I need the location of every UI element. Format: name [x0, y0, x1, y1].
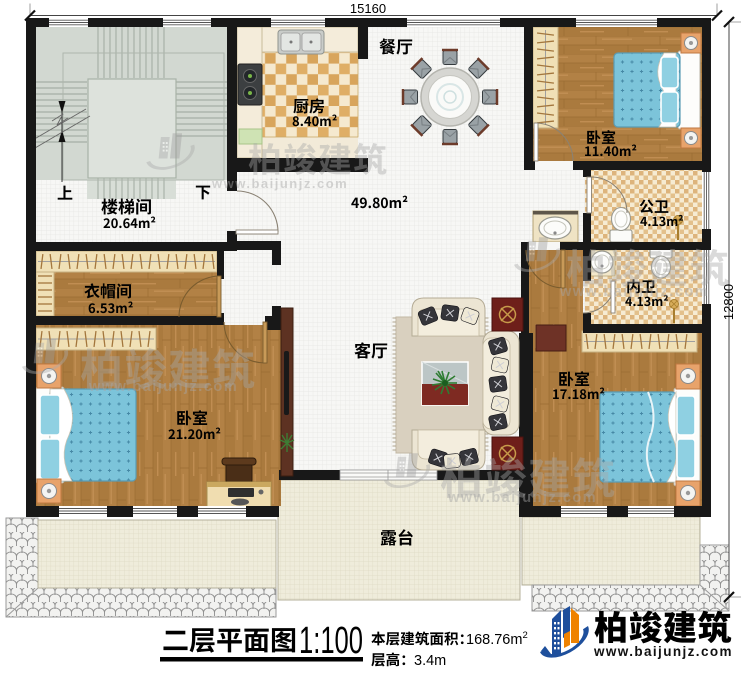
- svg-text:12800: 12800: [721, 284, 736, 320]
- svg-text:15160: 15160: [350, 1, 386, 16]
- svg-text:www.baijunjz.com: www.baijunjz.com: [447, 490, 597, 506]
- svg-text:www.baijunjz.com: www.baijunjz.com: [593, 644, 733, 659]
- svg-text:www.baijunjz.com: www.baijunjz.com: [88, 379, 238, 395]
- svg-text:www.baijunjz.com: www.baijunjz.com: [559, 284, 709, 300]
- svg-text:3.4m: 3.4m: [414, 653, 446, 669]
- svg-text:www.baijunjz.com: www.baijunjz.com: [211, 176, 348, 191]
- svg-text:1:100: 1:100: [299, 620, 363, 662]
- svg-text:168.76m2: 168.76m2: [466, 630, 528, 648]
